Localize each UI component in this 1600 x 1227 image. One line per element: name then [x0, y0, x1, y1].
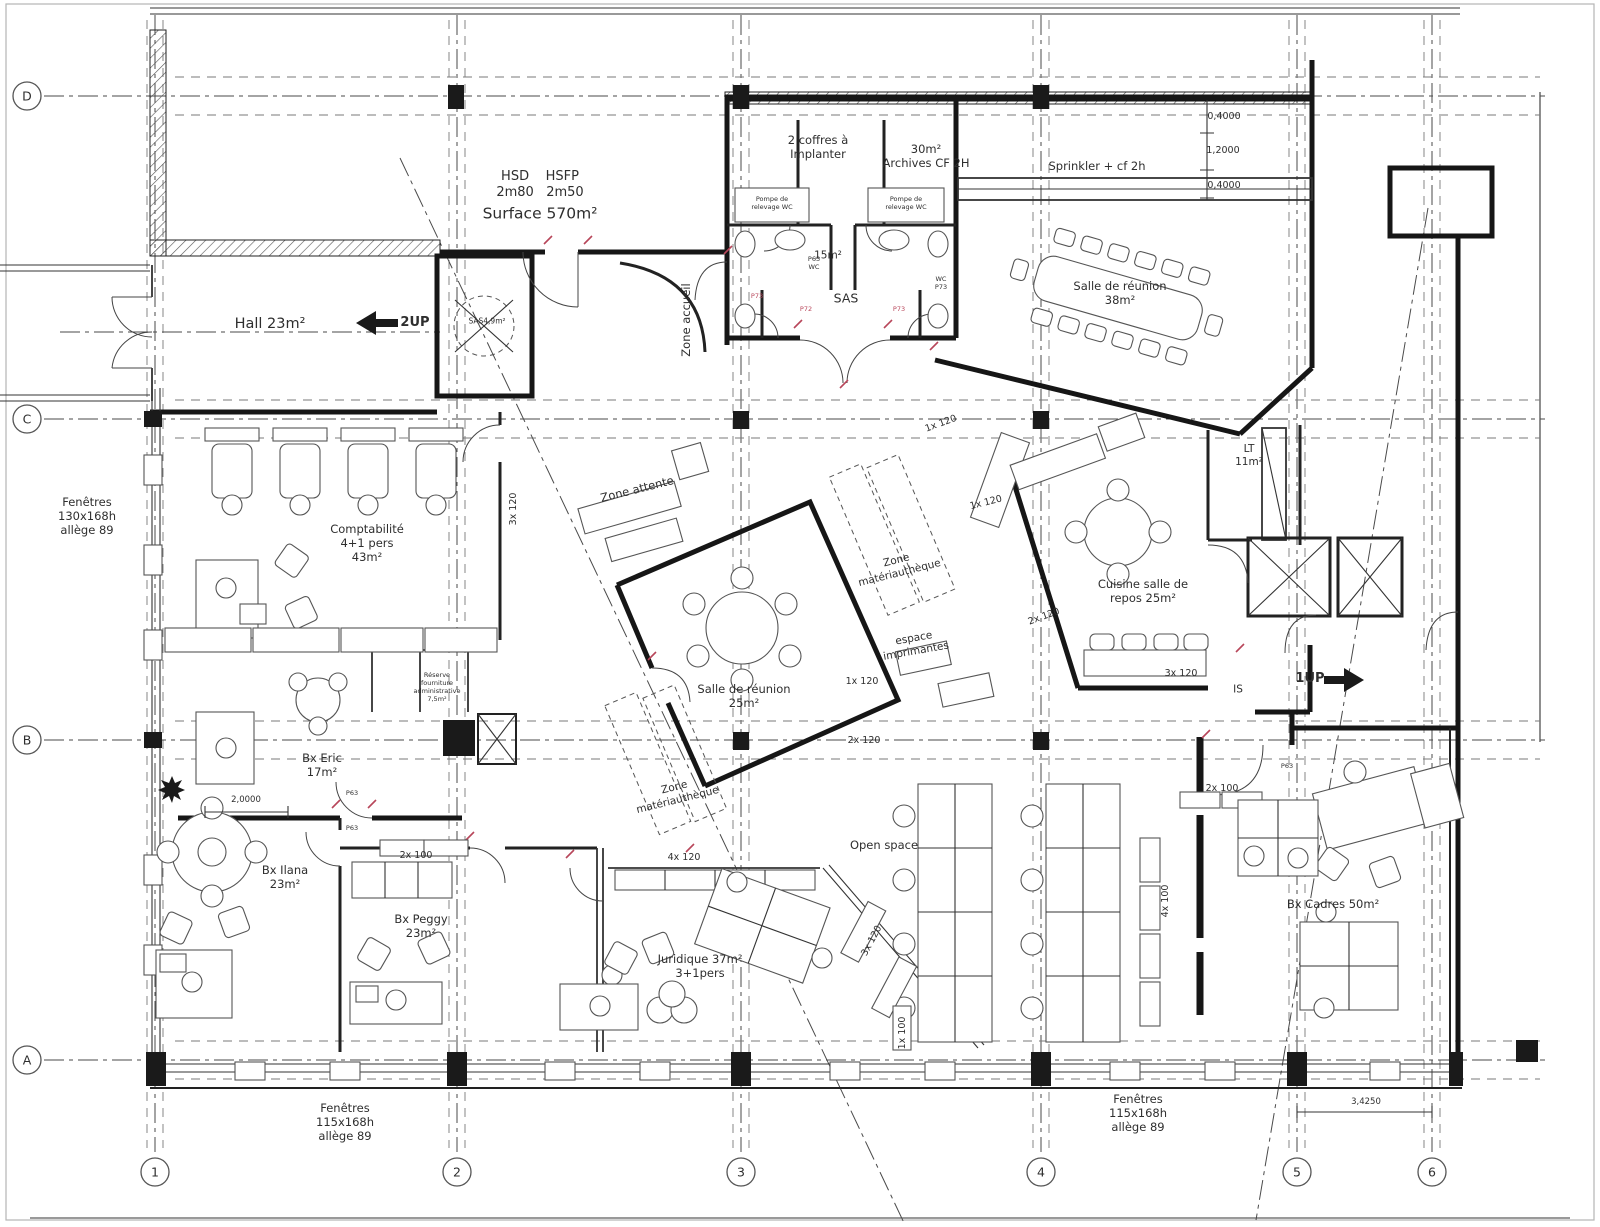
room-label-open-space: Open space — [850, 838, 918, 852]
bx-cadres-furniture — [1140, 758, 1464, 1026]
juridique-furniture — [560, 869, 832, 1030]
cabinet-1x120-c: 1x 120 — [846, 676, 879, 688]
grid-col-2: 2 — [453, 1164, 461, 1179]
room-label-lt: LT 11m² — [1235, 443, 1263, 469]
cabinet-2x100-b: 2x 100 — [1206, 783, 1239, 795]
window-note-bottom-right: Fenêtres 115x168h allège 89 — [1109, 1092, 1167, 1134]
room-label-hall: Hall 23m² — [235, 316, 306, 334]
grid-col-1: 1 — [151, 1164, 159, 1179]
door-code-p63-wc-left: P63 WC — [808, 256, 820, 272]
window-note-bottom-left: Fenêtres 115x168h allège 89 — [316, 1101, 374, 1143]
cabinet-3x120-b: 3x 120 — [1165, 668, 1198, 680]
room-label-bx-eric: Bx Eric 17m² — [302, 751, 342, 779]
stair-label-1up: 1UP — [1295, 671, 1324, 687]
floor-plan-drawing — [0, 0, 1600, 1227]
cabinet-2x120-a: 2x 120 — [848, 735, 881, 747]
door-code-p63-eric-bottom: P63 — [346, 825, 358, 833]
door-code-p63-eric-top: P63 — [346, 790, 358, 798]
room-label-bx-cadres: Bx Cadres 50m² — [1287, 897, 1379, 911]
dim-top-a: 0,4000 — [1207, 111, 1240, 123]
grid-col-4: 4 — [1037, 1164, 1045, 1179]
door-code-p73-red-right: P73 — [893, 306, 905, 314]
grid-col-6: 6 — [1428, 1164, 1436, 1179]
grid-row-a: A — [23, 1052, 32, 1067]
room-label-reunion38: Salle de réunion 38m² — [1073, 279, 1166, 307]
dim-ilana: 2,0000 — [231, 795, 261, 805]
door-code-p63-is: P63 — [1281, 763, 1293, 771]
stair-label-2up: 2UP — [400, 315, 429, 331]
grid-row-b: B — [23, 732, 32, 747]
window-note-left: Fenêtres 130x168h allège 89 — [58, 495, 116, 537]
note-pompe-right: Pompe de relevage WC — [885, 196, 926, 212]
existing-walls — [150, 30, 1312, 256]
cabinet-4x100: 4x 100 — [1160, 885, 1172, 918]
room-label-bx-ilana: Bx Ilana 23m² — [262, 863, 308, 891]
note-pompe-left: Pompe de relevage WC — [751, 196, 792, 212]
dim-top-c: 0,4000 — [1207, 180, 1240, 192]
bx-eric-furniture — [158, 673, 347, 803]
grid-col-5: 5 — [1293, 1164, 1301, 1179]
room-label-reunion25: Salle de réunion 25m² — [697, 682, 790, 710]
reunion25-table — [683, 567, 801, 691]
grid-row-d: D — [22, 88, 32, 103]
stair-arrows — [356, 311, 1364, 692]
door-code-p73-wc-right: WC P73 — [935, 276, 947, 292]
room-label-reserve: Réserve fourniture administrative 7,5m² — [414, 672, 461, 704]
room-label-zone-accueil: Zone accueil — [679, 283, 693, 356]
dim-top-b: 1,2000 — [1206, 145, 1239, 157]
grid-row-c: C — [23, 411, 32, 426]
spec-label: HSD HSFP 2m80 2m50 — [496, 169, 583, 201]
room-label-wc-sas: SAS — [834, 290, 859, 305]
furniture-layer — [156, 188, 1464, 1050]
cabinet-1x100: 1x 100 — [897, 1017, 909, 1050]
room-label-is: IS — [1233, 684, 1243, 697]
note-coffres: 2 coffres à Implanter — [788, 133, 849, 161]
door-code-p72-red-left: P72 — [800, 306, 812, 314]
room-label-sas-hall: SAS4,9m² — [468, 316, 505, 325]
cabinet-4x120: 4x 120 — [668, 852, 701, 864]
grid-col-3: 3 — [737, 1164, 745, 1179]
surface-label: Surface 570m² — [483, 205, 598, 224]
floor-plan-page: HSD HSFP 2m80 2m50 Surface 570m² Hall 23… — [0, 0, 1600, 1227]
room-label-compta: Comptabilité 4+1 pers 43m² — [330, 522, 404, 564]
room-label-cuisine: Cuisine salle de repos 25m² — [1098, 577, 1188, 605]
dim-right: 3,4250 — [1351, 1097, 1381, 1107]
cabinet-2x100-a: 2x 100 — [400, 850, 433, 862]
room-label-bx-peggy: Bx Peggy 23m² — [394, 912, 447, 940]
bx-ilana-furniture — [156, 797, 267, 1018]
door-code-p73-red-left: P73 — [751, 293, 763, 301]
room-label-archives: 30m² Archives CF 2H — [883, 142, 970, 170]
cuisine-furniture — [1008, 413, 1208, 676]
cabinet-3x120-a: 3x 120 — [508, 493, 520, 526]
room-label-juridique: Juridique 37m² 3+1pers — [658, 952, 743, 980]
note-sprinkler: Sprinkler + cf 2h — [1048, 159, 1145, 173]
open-space-desks — [841, 784, 1120, 1050]
